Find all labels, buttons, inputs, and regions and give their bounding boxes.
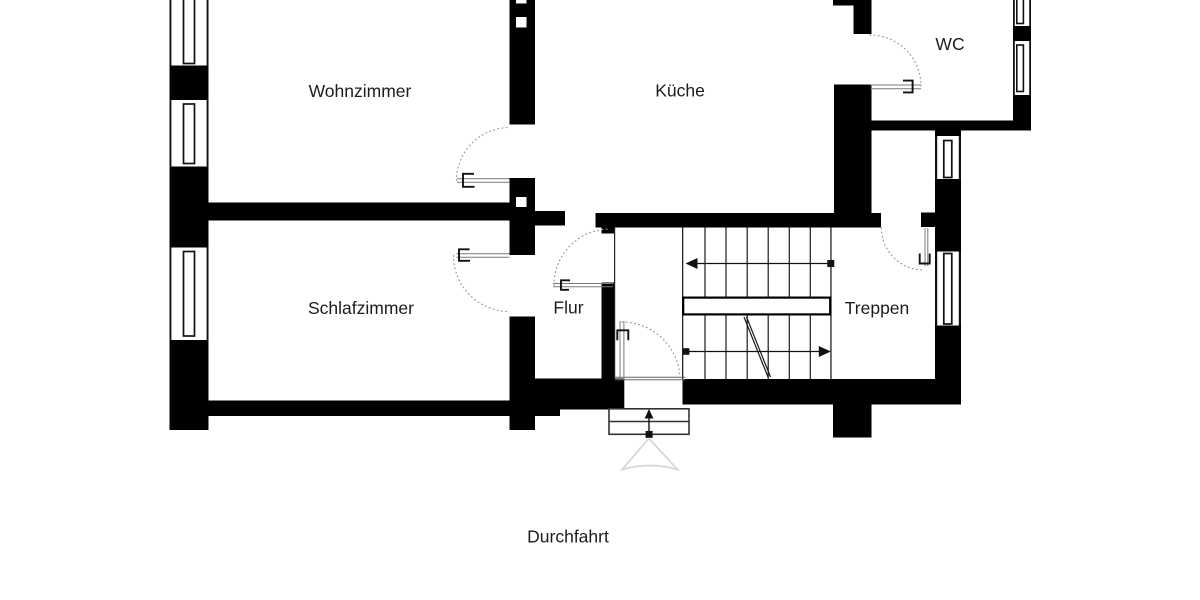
svg-text:Flur: Flur bbox=[553, 298, 583, 318]
svg-text:Küche: Küche bbox=[655, 81, 705, 101]
svg-text:Wohnzimmer: Wohnzimmer bbox=[309, 81, 412, 101]
svg-text:WC: WC bbox=[935, 34, 964, 54]
svg-text:Treppen: Treppen bbox=[845, 298, 910, 318]
svg-text:Schlafzimmer: Schlafzimmer bbox=[308, 298, 414, 318]
svg-text:Durchfahrt: Durchfahrt bbox=[527, 527, 609, 547]
